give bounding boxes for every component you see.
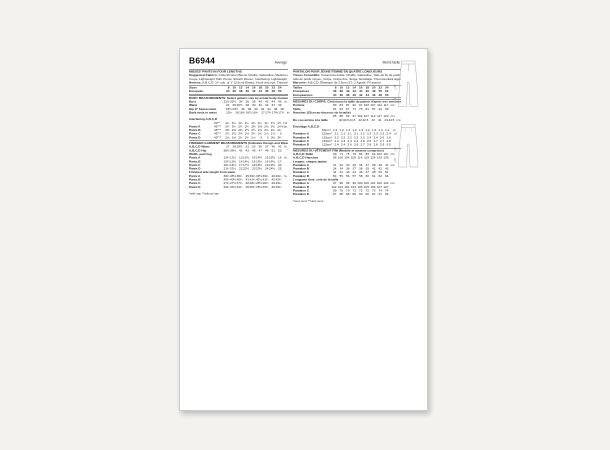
unit-label: In. (282, 156, 288, 160)
row-label: Européennes (293, 93, 322, 97)
row-label: Pantalon D (293, 193, 322, 197)
cell-value: 64 (382, 174, 389, 178)
unit-label: cm (389, 182, 395, 186)
difficulty-label-english: Average (189, 61, 287, 65)
text-line: Mercerie: A,B,C,D: Élastique de 2.5cm (1… (293, 81, 401, 85)
table-row: Du cou arrière à la taille4040.541.54242… (293, 118, 401, 122)
length-marker-letter: D (394, 158, 397, 162)
unit-label: In. (282, 100, 288, 104)
text-line: Notions: A,B,C,D: 1¼ yds. of 1" (2.5cm) … (189, 81, 288, 85)
pattern-sheet: B6944 Average Moins facile MISSES' PANTS… (179, 48, 428, 411)
row-label: Pants D (189, 136, 214, 140)
length-marker-letter: A (394, 85, 396, 89)
table-row: Back neck to waist15¾1616¼16½16¾1717¼17⅜… (189, 111, 288, 115)
table-row: Pantalon D878888899090919192 (293, 193, 401, 197)
length-marker-letter: B (394, 97, 396, 101)
cell-value: 3.0 (384, 143, 391, 147)
unit-label: In. (282, 174, 288, 178)
rule (293, 98, 401, 99)
row-label: Pants D (189, 185, 214, 189)
pants-front-illustration: A B (394, 59, 423, 109)
fabric-width-label: 45"** (214, 136, 223, 140)
column-french: PANTALON POUR JEUNE FEMME EN QUATRE LONG… (293, 68, 401, 203)
row-label: Back neck to waist (189, 111, 217, 115)
row-label: Pantalon D (293, 143, 322, 147)
footnote: *with nap **without nap (189, 192, 288, 196)
column-english: MISSES' PANTS IN FOUR LENGTHSSuggested F… (189, 68, 288, 196)
unit-label: Yds. (282, 125, 288, 129)
difficulty-label-french: Moins facile (293, 61, 400, 65)
table-row: European343638404244464850 (189, 90, 288, 94)
rule (189, 94, 288, 95)
pants-front-view-drawing: A B (394, 59, 423, 109)
cell-value: 36¼ (275, 185, 282, 189)
cell-value: 50 (382, 93, 389, 97)
table-row: Européennes343638404244464850 (293, 93, 401, 97)
unit-label: " (282, 149, 288, 153)
table-row: Pantalon D115cm*2.42.42.62.62.72.82.82.9… (293, 143, 401, 147)
pants-back-view-drawing: C D (394, 123, 423, 169)
sheet-content: B6944 Average Moins facile MISSES' PANTS… (180, 49, 427, 410)
cell-value: 3¼ (275, 136, 282, 140)
footnote: *avec sens **sans sens (293, 200, 401, 204)
table-row: Pants D34¼34½34¾3535¼35½35¾3636¼ (189, 185, 288, 189)
unit-label: In. (284, 111, 290, 115)
cell-value: 25 (275, 167, 282, 171)
cell-value: 99 (382, 107, 389, 111)
cell-value: 50 (275, 90, 282, 94)
cell-value: 135 (382, 156, 389, 160)
unit-label: cm (394, 118, 400, 122)
screenshot-canvas: { "colors": { "canvas_bg": "#f3f2ef", "p… (0, 0, 610, 450)
length-marker-letter: C (394, 147, 397, 151)
row-label: Du cou arrière à la taille (293, 118, 328, 122)
row-label: European (189, 90, 214, 94)
cell-value: 92 (382, 193, 389, 197)
pants-back-illustration: C D (394, 123, 423, 169)
table-row: Pants D45"**2⅝2⅝2¾2¾2⅞333⅛3¼ (189, 136, 288, 140)
fabric-width-label: 115cm* (322, 143, 332, 147)
